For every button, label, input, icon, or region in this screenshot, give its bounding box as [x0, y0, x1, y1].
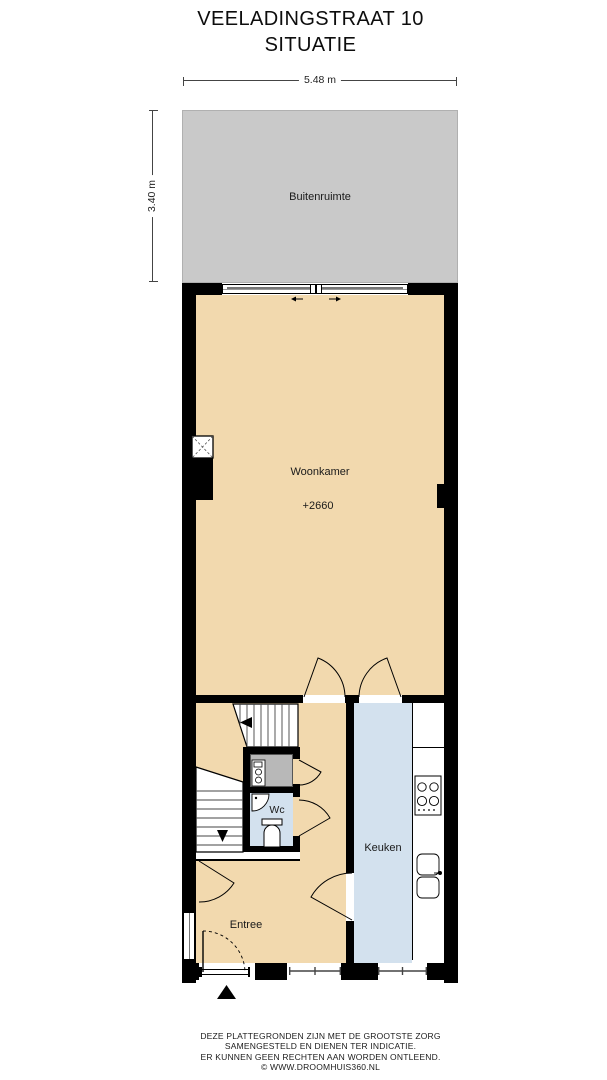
dimension-line-depth: 3.40 m [152, 110, 153, 282]
sliding-panel-right [319, 287, 403, 289]
sliding-window-lock [316, 284, 322, 294]
page-title: VEELADINGSTRAAT 10 [7, 6, 607, 32]
wall-mid-left [196, 695, 303, 703]
label-keuken: Keuken [364, 842, 401, 854]
kitchen-counter [412, 703, 444, 960]
room-wc-floor [250, 793, 293, 846]
sliding-panel-left [227, 287, 311, 289]
facade-window-2 [378, 967, 427, 975]
wall-bottom-2 [255, 963, 287, 980]
title-block: VEELADINGSTRAAT 10 SITUATIE [7, 6, 607, 58]
label-woonkamer-level: +2660 [303, 500, 334, 512]
wall-stair-column-left [243, 747, 250, 860]
disclaimer-line: SAMENGESTELD EN DIENEN TER INDICATIE. [17, 1041, 607, 1051]
landing-edge [196, 859, 300, 861]
entrance-marker-icon [217, 985, 236, 999]
meter-cupboard [250, 754, 293, 787]
wall-top-right [408, 283, 444, 295]
kitchen-counter-divider [412, 747, 444, 748]
disclaimer-line: ER KUNNEN GEEN RECHTEN AAN WORDEN ONTLEE… [17, 1052, 607, 1062]
chimney-block [182, 458, 213, 500]
label-wc: Wc [269, 804, 284, 816]
wall-mid-right [402, 695, 444, 703]
page-subtitle: SITUATIE [7, 32, 607, 58]
wall-keuken-upper [346, 703, 354, 873]
front-door-jamb [199, 967, 202, 977]
room-woonkamer-floor [196, 295, 444, 695]
wall-mid-center [345, 695, 359, 703]
disclaimer-line: DEZE PLATTEGRONDEN ZIJN MET DE GROOTSTE … [17, 1031, 607, 1041]
label-entree: Entree [230, 919, 262, 931]
wall-column-right-a [293, 747, 300, 759]
front-door-jamb [248, 967, 251, 977]
label-woonkamer: Woonkamer [290, 466, 349, 478]
wall-bottom-1 [182, 963, 199, 980]
wall-under-stairs [243, 747, 300, 754]
wall-top-left [182, 283, 222, 295]
dimension-tick [183, 77, 184, 86]
dimension-tick [149, 281, 158, 282]
entree-side-window-mullion [189, 913, 190, 959]
dimension-depth-label: 3.40 m [146, 175, 158, 217]
dimension-tick [456, 77, 457, 86]
room-keuken-floor [354, 703, 412, 963]
wall-bottom-4 [427, 963, 458, 980]
front-door-threshold [201, 969, 249, 975]
facade-window-1 [289, 967, 341, 975]
landing-strip [196, 852, 300, 859]
dimension-width-label: 5.48 m [299, 74, 341, 86]
floorplan-page: VEELADINGSTRAAT 10 SITUATIE 5.48 m 3.40 … [0, 0, 607, 1080]
disclaimer-line: © WWW.DROOMHUIS360.NL [17, 1062, 607, 1072]
wall-left [182, 283, 196, 983]
wall-mk-wc-divider [243, 787, 300, 793]
wall-keuken-lower [346, 921, 354, 963]
label-buitenruimte: Buitenruimte [289, 191, 351, 203]
disclaimer: DEZE PLATTEGRONDEN ZIJN MET DE GROOTSTE … [17, 1031, 607, 1072]
dimension-tick [149, 110, 158, 111]
wall-right [444, 283, 458, 983]
dimension-line-width: 5.48 m [183, 80, 457, 81]
wall-bottom-3 [341, 963, 378, 980]
wall-right-notch [437, 484, 444, 508]
